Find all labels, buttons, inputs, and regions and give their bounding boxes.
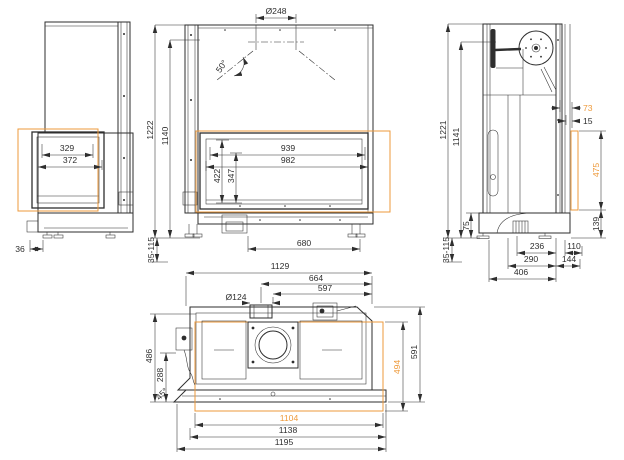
dim-glass-outer-width: 982 [281, 155, 296, 165]
dim-top-width: 1129 [271, 261, 290, 271]
dim-foot-range: 35-115 [146, 237, 156, 263]
dim-total-depth: 591 [409, 345, 419, 360]
hood-line-right [299, 51, 335, 80]
right-side-view: 1221 1141 35-115 73 15 475 139 75 [438, 24, 606, 282]
dim-glass-width: 1104 [280, 413, 299, 423]
fan-mount-arm [495, 49, 521, 50]
dim-hood-angle: 50° [214, 58, 230, 74]
base-box [38, 213, 133, 232]
dim-pane-offset: 15 [583, 116, 593, 126]
dim-glass-outer-height: 422 [212, 169, 222, 184]
base-box [479, 213, 570, 233]
dim-inner-depth: 288 [155, 368, 165, 383]
air-slot [488, 130, 498, 196]
side-glass-outline [18, 129, 98, 211]
flue-opening [259, 331, 287, 359]
left-side-view: 329 372 36 [15, 22, 133, 254]
actuator-box [313, 303, 337, 320]
feet [477, 233, 551, 239]
flue-collar [217, 25, 335, 80]
dim-glass-inner-width: 939 [281, 143, 296, 153]
dim-side-glass-outer: 372 [63, 155, 78, 165]
dim-flue-center: 664 [309, 273, 324, 283]
ash-bracket [27, 221, 38, 232]
front-body [198, 25, 373, 213]
glass-footprint-outline [195, 322, 383, 411]
plan-body [178, 307, 372, 390]
dim-intake-diameter: Ø124 [225, 292, 246, 302]
flue-plate [248, 322, 298, 368]
dim-front-offset: 36 [15, 244, 25, 254]
technical-drawing: 329 372 36 50° Ø248 [0, 0, 624, 460]
dim-flue-edge: 597 [318, 283, 333, 293]
dim-total-width: 1195 [275, 437, 294, 447]
dim-total-height: 1222 [145, 120, 155, 139]
dim-flue-diameter: Ø248 [265, 6, 286, 16]
dim-front-depth: 144 [562, 254, 577, 264]
dim-body-depth: 486 [144, 349, 154, 364]
dim-duct-back: 236 [530, 241, 545, 251]
dim-side-glass-inner: 329 [60, 143, 75, 153]
dim-base-depth: 406 [514, 267, 529, 277]
front-frame-edge [118, 22, 130, 213]
dim-glass-inset: 73 [583, 103, 593, 113]
dim-total-height-side: 1221 [438, 120, 448, 139]
dim-base-height: 75 [461, 221, 471, 231]
dim-corner-angle: 45° [154, 386, 170, 402]
dim-front-ext: 110 [567, 241, 581, 251]
damper-blade [491, 29, 496, 68]
front-view: 50° Ø248 939 982 422 347 [145, 6, 390, 263]
feet [43, 232, 115, 238]
dim-feet-span: 680 [297, 238, 312, 248]
base [198, 213, 373, 224]
grille [513, 221, 528, 233]
feet [185, 224, 365, 237]
angle-arc [234, 57, 244, 76]
dim-glass-inner-height: 347 [226, 169, 236, 184]
dim-duct-mid: 290 [524, 254, 539, 264]
dim-glass-depth: 494 [392, 360, 402, 375]
duct-curve [497, 213, 531, 233]
dim-glass-height: 475 [591, 163, 601, 178]
dim-mid-width: 1138 [279, 425, 298, 435]
front-glass-edge-outline [571, 131, 578, 210]
dim-body-height: 1140 [160, 127, 170, 146]
side-panel [45, 22, 118, 133]
dim-foot-range-side: 35-115 [441, 237, 451, 263]
top-plan-view: 1129 664 597 Ø124 486 288 45° 494 591 11… [144, 261, 425, 452]
dim-body-height-side: 1141 [451, 128, 461, 147]
dim-bottom-offset: 139 [591, 217, 601, 232]
